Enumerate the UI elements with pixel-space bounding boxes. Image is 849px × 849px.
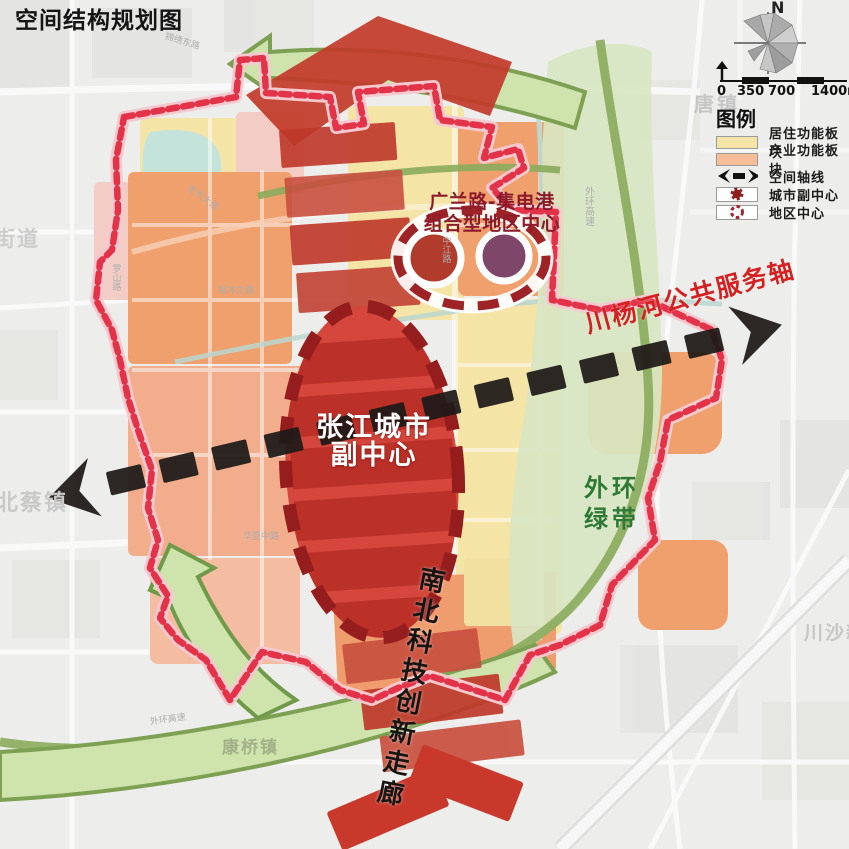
axis-arrow-right — [728, 296, 789, 365]
road-label-waihuan-right: 外环高速 — [582, 186, 593, 226]
center-dot-purple — [479, 231, 529, 281]
scale-bar: 0 350 700 1400m — [712, 60, 849, 102]
legend-item-axis: 空间轴线 — [716, 168, 849, 184]
town-label-beicai: 北蔡镇 — [0, 492, 68, 515]
industrial-swatch — [716, 153, 758, 166]
scale-tick-700: 700 — [768, 84, 795, 99]
legend-label: 空间轴线 — [769, 167, 825, 186]
subcenter-dot-red — [407, 231, 461, 285]
town-label-jiedao: 街道 — [0, 228, 40, 250]
district-center-line1: 广兰路-集电港 — [398, 192, 586, 214]
page-title: 空间结构规划图 — [15, 9, 183, 33]
legend-title: 图例 — [716, 109, 756, 130]
scale-bar-graphic — [712, 60, 849, 84]
district-center-dot-icon — [728, 205, 746, 219]
green-belt-line2: 绿带 — [584, 504, 640, 535]
double-arrow-icon — [716, 168, 758, 184]
district-center-swatch — [716, 205, 758, 220]
axis-swatch — [716, 168, 758, 184]
scale-tick-1400: 1400m — [811, 84, 849, 99]
road-label-zhongjiang: 中江路 — [440, 236, 449, 263]
legend-label: 地区中心 — [769, 203, 825, 222]
compass-north-label: N — [771, 0, 784, 17]
residential-swatch — [716, 136, 758, 149]
scale-tick-0: 0 — [717, 84, 726, 99]
district-center-line2: 组合型地区中心 — [398, 214, 586, 236]
city-subcenter-line1: 张江城市 — [295, 414, 453, 442]
scale-tick-350: 350 — [737, 84, 764, 99]
legend-item-district-center: 地区中心 — [716, 204, 849, 220]
legend-label: 城市副中心 — [769, 185, 839, 204]
green-belt-line1: 外环 — [584, 473, 640, 504]
green-belt-label: 外环 绿带 — [584, 473, 640, 535]
industrial-patch — [638, 540, 728, 630]
city-subcenter-swatch — [716, 187, 758, 202]
district-center-label: 广兰路-集电港 组合型地区中心 — [398, 192, 586, 236]
road-label-zuchongzhi: 祖冲之路 — [218, 287, 254, 296]
city-subcenter-label: 张江城市 副中心 — [295, 414, 453, 471]
legend-item-city-subcenter: 城市副中心 — [716, 186, 849, 202]
town-label-chuansha: 川沙新镇 — [804, 624, 849, 644]
planning-map: 张江城市 副中心 广兰路-集电港 组合型地区中心 川杨河公共服务轴 南北科技创新… — [0, 0, 849, 849]
city-subcenter-dot-icon — [728, 187, 746, 201]
road-label-luoshan: 罗山路 — [110, 264, 119, 291]
city-subcenter-line2: 副中心 — [295, 442, 453, 470]
road-label-huaxia: 华夏中路 — [243, 533, 279, 542]
legend-item-industrial: 产业功能板块 — [716, 151, 849, 167]
town-label-kangqiao: 康桥镇 — [222, 740, 279, 758]
